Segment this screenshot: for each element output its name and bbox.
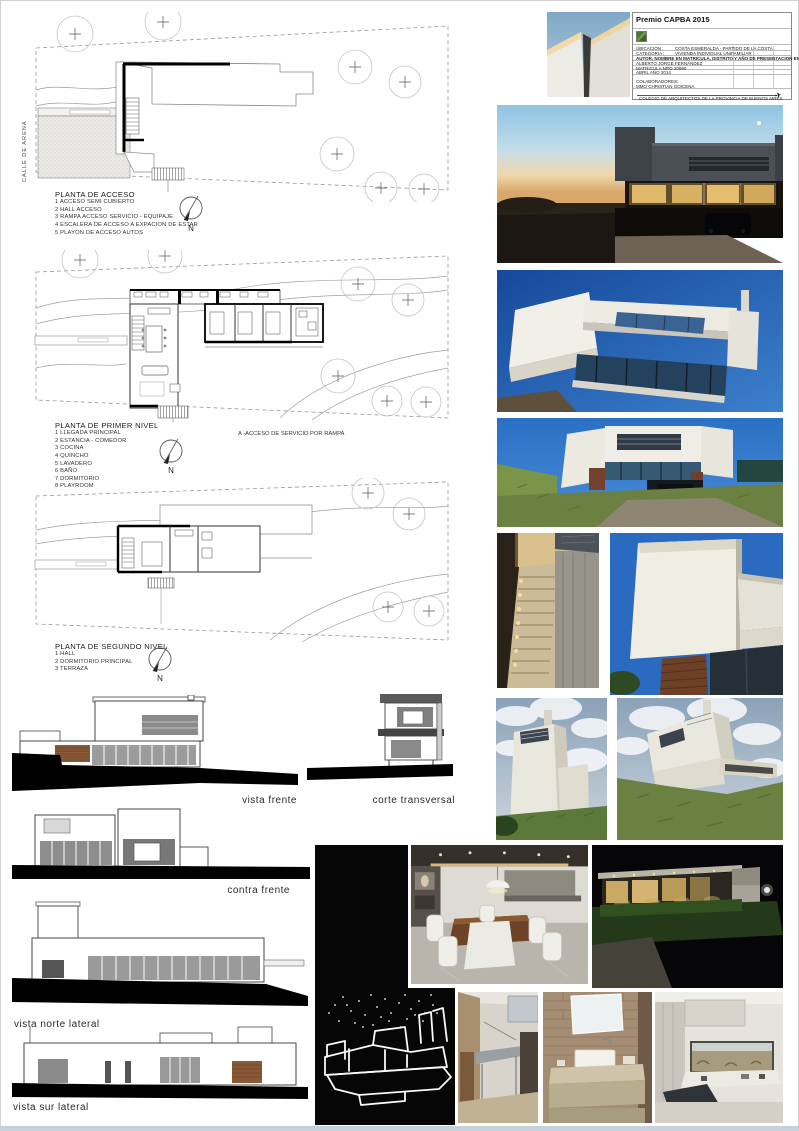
site-plan-acceso bbox=[30, 12, 455, 202]
photo-cloudy-corner bbox=[496, 698, 607, 840]
photo-dusk-front bbox=[497, 105, 783, 263]
wood-slats bbox=[232, 1061, 262, 1083]
label-vista-sur: vista sur lateral bbox=[13, 1102, 89, 1113]
colaboradores-value: MMO CHRISTIAN GOICENA bbox=[636, 84, 695, 89]
plan-acceso-title: PLANTA DE ACCESO bbox=[55, 190, 198, 199]
brick-pier bbox=[660, 655, 708, 695]
building-plan bbox=[118, 505, 312, 624]
contour-lines bbox=[36, 86, 123, 106]
street-label: CALLE DE ARENA bbox=[22, 120, 28, 182]
north-letter: N bbox=[147, 674, 173, 683]
plan-primer-title: PLANTA DE PRIMER NIVEL bbox=[55, 421, 159, 430]
photo-interior-window bbox=[655, 992, 783, 1123]
sheet-bottom-edge bbox=[0, 1126, 799, 1131]
college-mark-icon: ✈ bbox=[774, 90, 782, 100]
photo-corridor bbox=[458, 992, 538, 1123]
stars bbox=[328, 994, 438, 1028]
photo-cloudy-hillside bbox=[617, 698, 783, 840]
street-platform bbox=[35, 560, 127, 569]
photo-day-front-car bbox=[497, 418, 783, 527]
titleblock-title: Premio CAPBA 2015 bbox=[636, 15, 710, 24]
elevation-vista-sur bbox=[10, 1025, 310, 1107]
north-compass-icon bbox=[178, 194, 204, 224]
titleblock-photo bbox=[547, 12, 630, 97]
site-plan-primer-nivel bbox=[30, 250, 455, 422]
fecha: ABRIL AÑO 2014 bbox=[636, 70, 671, 75]
elevation-vista-norte bbox=[10, 900, 310, 1018]
lit-windows bbox=[629, 183, 776, 205]
titleblock-footer: COLEGIO DE ARQUITECTOS DE LA PROVINCIA D… bbox=[639, 96, 782, 101]
elevation-vista-frente bbox=[10, 695, 300, 800]
titleblock-table: Premio CAPBA 2015 UBICACIÓN : COSTA ESME… bbox=[632, 12, 792, 100]
street-platform bbox=[35, 336, 127, 345]
section-corte-transversal bbox=[305, 690, 455, 800]
site-plan-segundo-nivel bbox=[30, 478, 455, 644]
plan-acceso-legend: PLANTA DE ACCESO 1 ACCESO SEMI CUBIERTO … bbox=[55, 190, 198, 237]
building-plan bbox=[130, 290, 323, 422]
photo-stairs-interior bbox=[497, 533, 599, 688]
photo-blue-sky-closeup bbox=[497, 270, 783, 412]
ubicacion-value: COSTA ESMERALDA - PARTIDO DE LA COSTA bbox=[675, 46, 773, 51]
north-compass-icon bbox=[147, 645, 173, 675]
window bbox=[691, 1042, 773, 1072]
elevation-contra-frente bbox=[10, 805, 315, 893]
ubicacion-label: UBICACIÓN : bbox=[636, 46, 664, 51]
building-plan bbox=[116, 62, 313, 192]
photo-night-exterior bbox=[592, 845, 783, 988]
label-contra-frente: contra frente bbox=[195, 885, 290, 896]
ground bbox=[12, 865, 310, 879]
house-sketch-icon bbox=[325, 1008, 451, 1105]
photo-bathroom-sink bbox=[543, 992, 652, 1123]
north-compass-icon bbox=[158, 437, 184, 467]
plan-primer-note: A -ACCESO DE SERVICIO POR RAMPA bbox=[238, 431, 344, 437]
photo-interior-dining bbox=[408, 845, 588, 988]
ground bbox=[307, 764, 453, 780]
presentation-board: CALLE DE ARENA bbox=[0, 0, 799, 1131]
north-letter: N bbox=[178, 224, 204, 233]
label-corte-transversal: corte transversal bbox=[360, 795, 455, 806]
photo-white-volumes-closeup bbox=[610, 533, 783, 695]
capba-logo-icon bbox=[636, 31, 647, 42]
north-letter: N bbox=[158, 466, 184, 475]
